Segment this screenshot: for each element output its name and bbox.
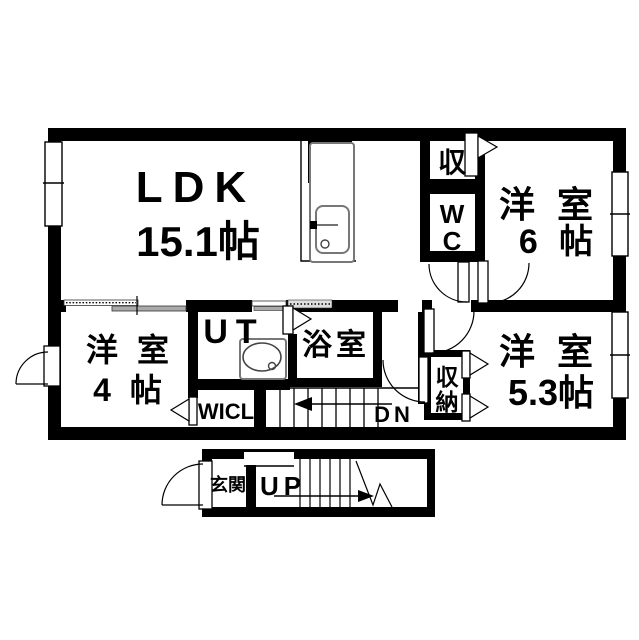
wc-label-line2: C (443, 226, 462, 256)
wall-entry-bottom (202, 507, 435, 517)
hall-door-leaf (419, 357, 428, 403)
entrance-door-arc (162, 464, 203, 505)
ldk-label: LDK (136, 163, 256, 212)
wall-bath-right (373, 303, 382, 387)
closet-side-door-triangle-lower (470, 396, 488, 418)
bedroom6-door-leaf (478, 261, 488, 303)
bedroom53-door-arc (432, 311, 474, 353)
wall-wc-left (420, 128, 430, 262)
closet-top-door-leaf (465, 133, 478, 176)
closet-side-label-line1: 収 (436, 364, 460, 390)
closet-side-door-leaf-upper (462, 351, 470, 378)
wall-entry-right (427, 449, 435, 517)
bedroom6-label: 洋 室 (499, 184, 599, 225)
kitchen (301, 141, 356, 262)
wall-bottom (48, 427, 626, 440)
bath-door-leaf (283, 306, 293, 334)
closet-side-door-leaf-lower (462, 394, 470, 421)
slider-ut-bar (254, 307, 286, 311)
closet-side-door-triangle-upper (470, 353, 488, 375)
stairs-up-label: UP (260, 471, 306, 501)
bedroom53-size: 5.3帖 (508, 372, 594, 413)
floorplan-svg: LDK 15.1帖 洋 室 6 帖 収 W C 洋 室 4 帖 UT 浴室 WI… (0, 0, 639, 640)
wc-door-leaf (458, 262, 469, 302)
window-ldk-left (45, 142, 62, 226)
bedroom4-door-arc (16, 352, 48, 384)
bedroom6-size: 6 帖 (519, 223, 599, 261)
wall-mid-2 (186, 300, 252, 312)
bedroom4-size: 4 帖 (93, 372, 167, 408)
stairs-up-steps (300, 459, 350, 507)
bedroom53-label: 洋 室 (499, 331, 599, 372)
wicl-door-leaf (189, 397, 197, 425)
kitchen-faucet-base (310, 221, 317, 229)
entry-step-notch (244, 452, 294, 465)
closet-side-label-line2: 納 (436, 389, 459, 415)
wall-bed4-ut (188, 312, 198, 398)
genkan-label: 玄関 (210, 474, 246, 495)
wall-mid-1 (48, 300, 66, 312)
bedroom53-door-leaf (424, 309, 434, 353)
stairs-down-label: DN (374, 402, 414, 427)
slider-ldk-bed4-panel2 (112, 306, 186, 311)
wicl-label: WICL (198, 399, 254, 424)
ldk-size: 15.1帖 (136, 218, 260, 265)
wall-entry-top (202, 449, 435, 459)
stairs-down-arrow-head (294, 397, 312, 411)
bedroom4-label: 洋 室 (86, 332, 174, 368)
floorplan-image: LDK 15.1帖 洋 室 6 帖 収 W C 洋 室 4 帖 UT 浴室 WI… (0, 0, 639, 640)
slider-ut-panel (252, 301, 286, 306)
wall-closet-wc-divider (428, 179, 475, 194)
bath-label: 浴室 (302, 328, 370, 362)
wall-stairs-left (254, 390, 266, 428)
utility-label: UT (203, 313, 264, 351)
wc-label-line1: W (440, 199, 465, 229)
closet-top-label: 収 (438, 147, 467, 178)
slider-ldk-bed4-panel1 (64, 300, 138, 306)
wicl-door-triangle (171, 399, 189, 421)
wall-bath-bottom (288, 378, 382, 387)
wall-mid-4 (471, 300, 615, 312)
stairs-down-steps (280, 388, 378, 427)
bedroom6-door-arc (489, 263, 529, 303)
